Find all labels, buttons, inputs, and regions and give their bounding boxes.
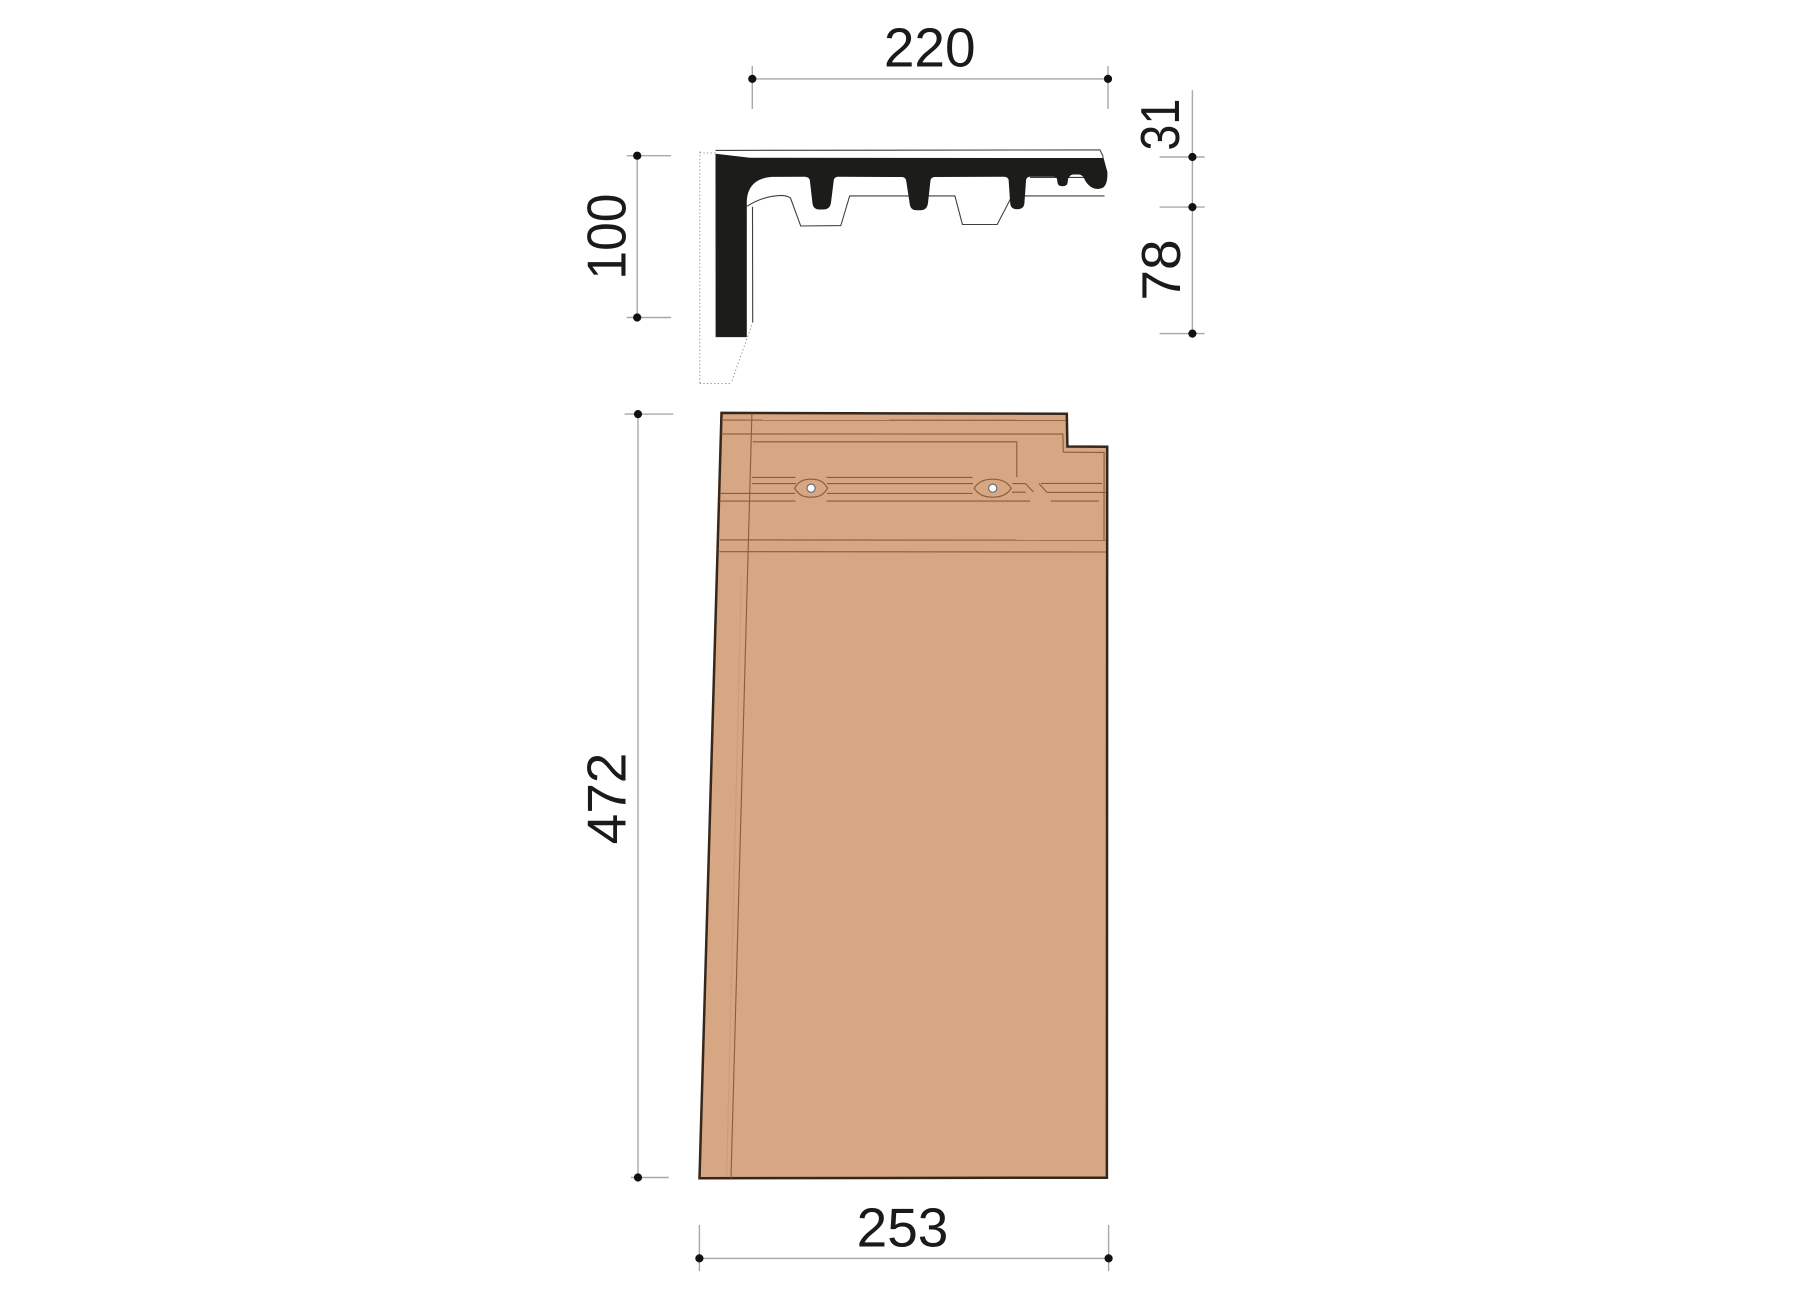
svg-text:78: 78 [1130, 239, 1192, 300]
svg-text:253: 253 [857, 1197, 949, 1259]
svg-text:220: 220 [884, 17, 976, 79]
svg-text:100: 100 [576, 194, 638, 280]
svg-text:472: 472 [576, 753, 638, 845]
svg-text:31: 31 [1129, 99, 1191, 151]
